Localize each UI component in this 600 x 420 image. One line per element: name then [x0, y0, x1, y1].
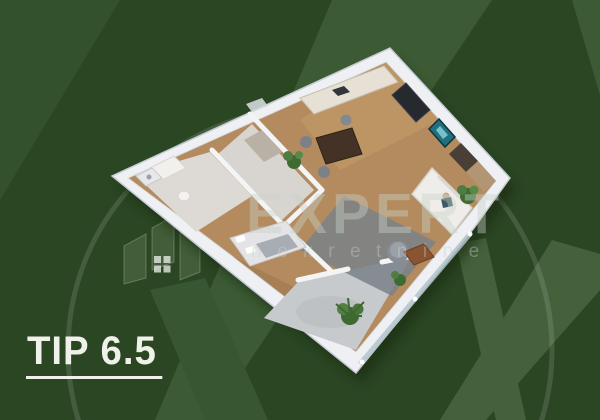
brand-tagline-watermark: nekretnine — [251, 241, 495, 262]
toilet — [178, 191, 190, 201]
brand-name-watermark: EXPERT — [246, 182, 504, 246]
apartment-type-label: TIP 6.5 — [26, 331, 163, 379]
dining-chair — [341, 115, 352, 126]
stripe-top-left — [0, 0, 120, 200]
stripe-top-right — [572, 0, 600, 95]
real-estate-floorplan-poster: EXPERT nekretnine TIP 6.5 — [0, 0, 600, 420]
brand-watermark-text: EXPERT nekretnine — [246, 182, 504, 262]
dining-chair — [300, 136, 312, 148]
dining-chair — [318, 166, 330, 178]
